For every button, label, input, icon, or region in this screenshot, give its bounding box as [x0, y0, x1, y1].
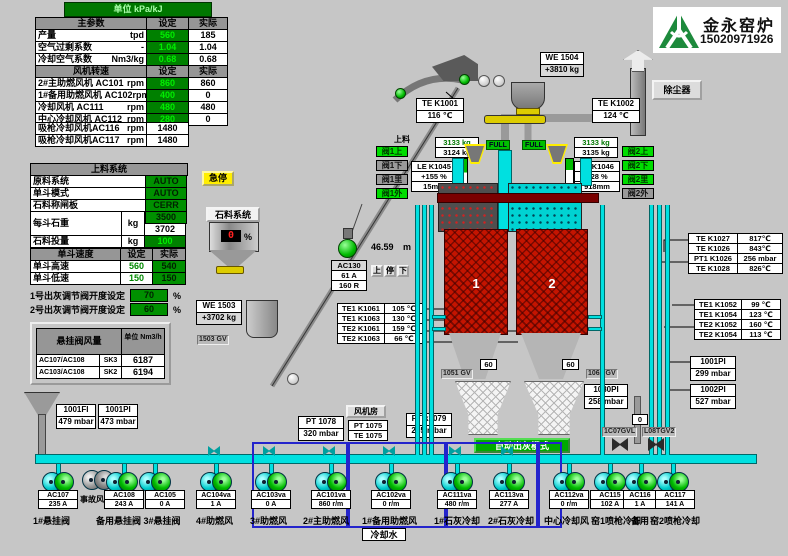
tag: TE 1075 — [348, 430, 388, 441]
row-unit: rpm — [127, 102, 144, 113]
pump-value: 277 A — [489, 499, 529, 509]
stone-level-unit: % — [244, 232, 252, 242]
value: 473 mbar — [98, 416, 138, 429]
row-label: 单斗低速 — [30, 272, 121, 285]
hopper-right-weight: 3133 kg 3135 kg — [574, 137, 618, 158]
actual-cell: 0 — [188, 113, 228, 126]
company-phone: 15020971926 — [700, 32, 773, 46]
weigh-tank — [511, 82, 545, 110]
pump-value: 480 r/m — [437, 499, 477, 509]
row-label: 吸枪冷却风机AC116 — [38, 123, 120, 134]
row-unit: tpd — [130, 30, 144, 41]
pt1078-indicator: PT 1078 320 mbar — [298, 416, 344, 441]
row-label: 冷却风机 AC111 — [38, 102, 104, 113]
pump-icon[interactable] — [441, 472, 473, 492]
setpoint-label: 1号出灰调节阀开度设定 — [30, 289, 125, 302]
table-row: 吸枪冷却风机AC117rpm 1480 — [35, 134, 189, 147]
ash-valve-setpoint-2: 2号出灰调节阀开度设定 60 % — [30, 303, 181, 316]
group-label: 1#备用助燃风 — [362, 514, 417, 527]
group-label: 备用 — [631, 514, 649, 527]
valve2-inner-badge: 阀2里 — [622, 174, 654, 185]
gv1503-label: 1503 GV — [197, 335, 229, 345]
flow-unit-header: 单位 Nm3/h — [121, 328, 165, 355]
row-tag: SK2 — [99, 366, 122, 379]
logo-triangle-icon — [658, 10, 700, 50]
pump-value: 235 A — [38, 499, 78, 509]
row-unit: rpm — [127, 135, 144, 146]
value: 124 ℃ — [592, 110, 640, 123]
pump-value: 1 A — [623, 499, 657, 509]
feeding-system-table: 上料系统 原料系统 AUTO 单斗模式 AUTO 石料称闸板 CERR 每斗石重… — [30, 163, 188, 248]
kiln-temps-right-mid: TE1 K105299 ℃ TE1 K1054123 ℃ TE2 K105216… — [694, 299, 781, 340]
cooling-water-label: 冷却水 — [362, 528, 406, 541]
row-label: 冷却空气系数 — [38, 54, 92, 65]
full-indicator: FULL — [486, 140, 510, 150]
row-unit: rpm — [127, 78, 144, 89]
gv-label: L08TGV2 — [642, 427, 676, 437]
group-label: 4#助燃风 — [196, 514, 233, 527]
group-label: 2#主助燃风 — [303, 514, 349, 527]
row-unit: rpm — [127, 123, 144, 134]
riser-pipe — [422, 205, 427, 455]
pi1080-indicator: 1080PI 258 mbar — [584, 384, 628, 409]
skip-down-button[interactable]: 下 — [397, 265, 409, 277]
riser-pipe — [665, 205, 670, 455]
skip-cap — [343, 228, 353, 239]
value: 113 ℃ — [741, 329, 781, 340]
skip-stop-button[interactable]: 停 — [384, 265, 396, 277]
group-label: 1#石灰冷却 — [434, 514, 480, 527]
kiln-number: 2 — [517, 276, 587, 291]
feed-label: 上料 — [394, 134, 410, 145]
pi1002-indicator: 1002PI 527 mbar — [690, 384, 736, 409]
lance-stub — [432, 315, 446, 319]
ash-valve-setpoint-1: 1号出灰调节阀开度设定 70 % — [30, 289, 181, 302]
actual-weight: 3135 kg — [574, 147, 618, 158]
row-unit: - — [141, 42, 144, 53]
fan-room-button[interactable]: 风机房 — [346, 405, 386, 418]
rail-roller — [287, 373, 299, 385]
pump-icon[interactable] — [315, 472, 347, 492]
kiln-number: 1 — [445, 276, 507, 291]
value: +3702 kg — [196, 312, 242, 325]
setpoint-unit: % — [173, 305, 181, 315]
row-unit: kg — [121, 211, 145, 236]
row-unit: rpm — [133, 90, 147, 101]
pump-icon[interactable] — [625, 472, 657, 492]
pipe — [452, 158, 464, 186]
value: +3810 kg — [540, 64, 584, 77]
te-k1002-indicator: TE K1002 124 ℃ — [592, 98, 640, 123]
kiln-temps-right-top: TE K1027817℃ TE K1026843℃ PT1 K1026256 m… — [688, 233, 783, 274]
stone-system-button[interactable]: 石料系统 — [206, 207, 260, 222]
pipe — [580, 158, 592, 186]
group-label: 备用悬挂阀 3#悬挂阀 — [96, 514, 181, 527]
valve1-inner-badge: 阀1里 — [376, 174, 408, 185]
setpoint-cell[interactable]: 100 — [144, 235, 186, 248]
dust-collector-button[interactable]: 除尘器 — [652, 80, 702, 100]
valve-flow-table: 悬挂阀风量 单位 Nm3/h AC107/AC108 SK3 6187 AC10… — [30, 322, 171, 385]
speed-value: 160 R — [331, 280, 367, 291]
gv-label: 1C07GVL — [602, 427, 637, 437]
te-k1001-indicator: TE K1001 116 ℃ — [416, 98, 464, 123]
pi1001-indicator: 1001PI 299 mbar — [690, 356, 736, 381]
row-unit: Nm3/kg — [111, 54, 144, 65]
value: 320 mbar — [298, 428, 344, 441]
conveyor-pulley — [395, 88, 406, 99]
value: 527 mbar — [690, 396, 736, 409]
value: 258 mbar — [584, 396, 628, 409]
pump-value: 0 r/m — [371, 499, 411, 509]
conveyor-roller — [493, 75, 505, 87]
table-row: 石料投量 kg 100 — [30, 235, 188, 248]
skip-car-icon[interactable] — [338, 239, 357, 258]
row-label: 每斗石重 — [30, 211, 122, 236]
row-label: 石料投量 — [30, 235, 122, 248]
conveyor-pulley — [459, 74, 470, 85]
row-unit: kg — [121, 235, 145, 248]
riser-pipe — [649, 205, 654, 455]
valve1-outer-badge: 阀1外 — [376, 188, 408, 199]
table-row: 每斗石重 kg 3500 3702 — [30, 211, 188, 236]
valve2-outer-badge: 阀2外 — [622, 188, 654, 199]
kiln-shaft-2[interactable]: 2 — [516, 229, 588, 335]
group-label: 3#助燃风 — [250, 514, 287, 527]
stone-level-display: 0 — [221, 230, 241, 242]
tag: TE K1028 — [688, 263, 738, 274]
value: 299 mbar — [690, 368, 736, 381]
pump-value: 0 A — [145, 499, 185, 509]
setpoint-label: 2号出灰调节阀开度设定 — [30, 303, 125, 316]
value: 826℃ — [737, 263, 783, 274]
row-label: 1#备用助燃风机 AC102 — [38, 90, 133, 101]
scada-screen: 单位 kPa/kJ 主参数 设定 实际 产量tpd 560 185 空气过剩系数… — [0, 0, 788, 556]
pump-icon[interactable] — [657, 472, 689, 492]
riser-pipe — [657, 205, 662, 455]
setpoint-value[interactable]: 60 — [130, 303, 168, 316]
unit-bar: 单位 kPa/kJ — [64, 2, 212, 17]
preheater-1 — [438, 183, 498, 232]
pump-icon[interactable] — [493, 472, 525, 492]
pump-value: 0 A — [251, 499, 291, 509]
row-label: 空气过剩系数 — [38, 42, 92, 53]
skip-speed-table: 单斗速度 设定 实际 单斗高速 560 540 单斗低速 150 150 — [30, 248, 186, 285]
tag: TE2 K1063 — [337, 333, 385, 344]
flow-title: 悬挂阀风量 — [36, 328, 122, 355]
pump-value: 860 r/m — [311, 499, 351, 509]
main-parameter-table: 主参数 设定 实际 产量tpd 560 185 空气过剩系数- 1.04 1.0… — [35, 17, 228, 126]
table-row: 单斗低速 150 150 — [30, 272, 186, 285]
full-indicator: FULL — [522, 140, 546, 150]
skip-drive-indicator: AC130 61 A 160 R — [331, 260, 367, 291]
pi1001-left-indicator: 1001PI 473 mbar — [98, 404, 138, 429]
estop-button[interactable]: 急停 — [202, 171, 234, 186]
pump-value: 243 A — [104, 499, 144, 509]
pump-icon[interactable] — [375, 472, 407, 492]
pump-value: 141 A — [655, 499, 695, 509]
pump-value: 0 r/m — [549, 499, 589, 509]
row-label: 吸枪冷却风机AC117 — [38, 135, 120, 146]
fi1001-indicator: 1001FI 479 mbar — [56, 404, 96, 429]
skip-height-unit: m — [403, 242, 411, 252]
kiln-temps-left: TE1 K1061105 ℃ TE1 K1063130 ℃ TE2 K10611… — [337, 303, 424, 344]
weigh-tank-pad — [516, 108, 540, 115]
pump-icon[interactable] — [594, 472, 626, 492]
skip-height: 46.59 — [371, 242, 394, 252]
pump-icon[interactable] — [255, 472, 287, 492]
row-label: 产量 — [38, 30, 56, 41]
kiln-shaft-1[interactable]: 1 — [444, 229, 508, 335]
lance-stub — [432, 327, 446, 331]
vibrating-conveyor — [484, 115, 546, 124]
gv1051-label: 1051 GV — [441, 369, 473, 379]
group-label: 中心冷却风 — [544, 514, 589, 527]
valve-counter: 0 — [632, 414, 648, 425]
group-label: 窑2喷枪冷却 — [650, 514, 700, 527]
pump-value: 1 A — [196, 499, 236, 509]
value: 479 mbar — [56, 416, 96, 429]
row-label: 2#主助燃风机 AC101 — [38, 78, 124, 89]
valve1-bottom-badge: 阀1下 — [376, 160, 408, 171]
we1503-indicator: WE 1503 +3702 kg — [196, 300, 242, 325]
kiln2-discharge-pct: 60 — [562, 359, 579, 370]
pump-icon[interactable] — [553, 472, 585, 492]
skip-up-button[interactable]: 上 — [371, 265, 383, 277]
value-cell: 1480 — [146, 134, 189, 147]
pump-icon[interactable] — [106, 472, 138, 492]
valve1-top-badge: 阀1上 — [376, 146, 408, 157]
group-label: 1#悬挂阀 — [33, 514, 70, 527]
lance-stub — [588, 315, 602, 319]
value: 116 ℃ — [416, 110, 464, 123]
conveyor-roller — [478, 75, 490, 87]
fan-room-indicators: PT 1075 TE 1075 — [348, 420, 388, 441]
charge-gallery — [437, 193, 599, 203]
valve2-bottom-badge: 阀2下 — [622, 160, 654, 171]
tag: TE2 K1054 — [694, 329, 742, 340]
pump-icon[interactable] — [42, 472, 74, 492]
weigh-bin-icon — [246, 300, 278, 338]
table-row: AC103/AC108 SK2 6194 — [36, 366, 165, 379]
we1504-indicator: WE 1504 +3810 kg — [540, 52, 584, 77]
actual-cell: 150 — [152, 272, 186, 285]
stone-discharge-pad — [216, 266, 244, 274]
suction-fan-rows: 吸枪冷却风机AC116rpm 1480 吸枪冷却风机AC117rpm 1480 — [35, 122, 189, 147]
setpoint-value[interactable]: 70 — [130, 289, 168, 302]
flow-value: 6194 — [121, 366, 165, 379]
valve2-top-badge: 阀2上 — [622, 146, 654, 157]
kiln1-discharge-pct: 60 — [480, 359, 497, 370]
group-label: 2#石灰冷却 — [488, 514, 534, 527]
pump-icon[interactable] — [200, 472, 232, 492]
setpoint-cell[interactable]: 150 — [120, 272, 153, 285]
preheater-2 — [508, 183, 582, 232]
pump-icon[interactable] — [139, 472, 171, 492]
row-label: AC103/AC108 — [36, 366, 100, 379]
lance-stub — [588, 327, 602, 331]
riser-pipe — [415, 205, 420, 455]
funnel-stem — [38, 414, 46, 458]
setpoint-unit: % — [173, 291, 181, 301]
